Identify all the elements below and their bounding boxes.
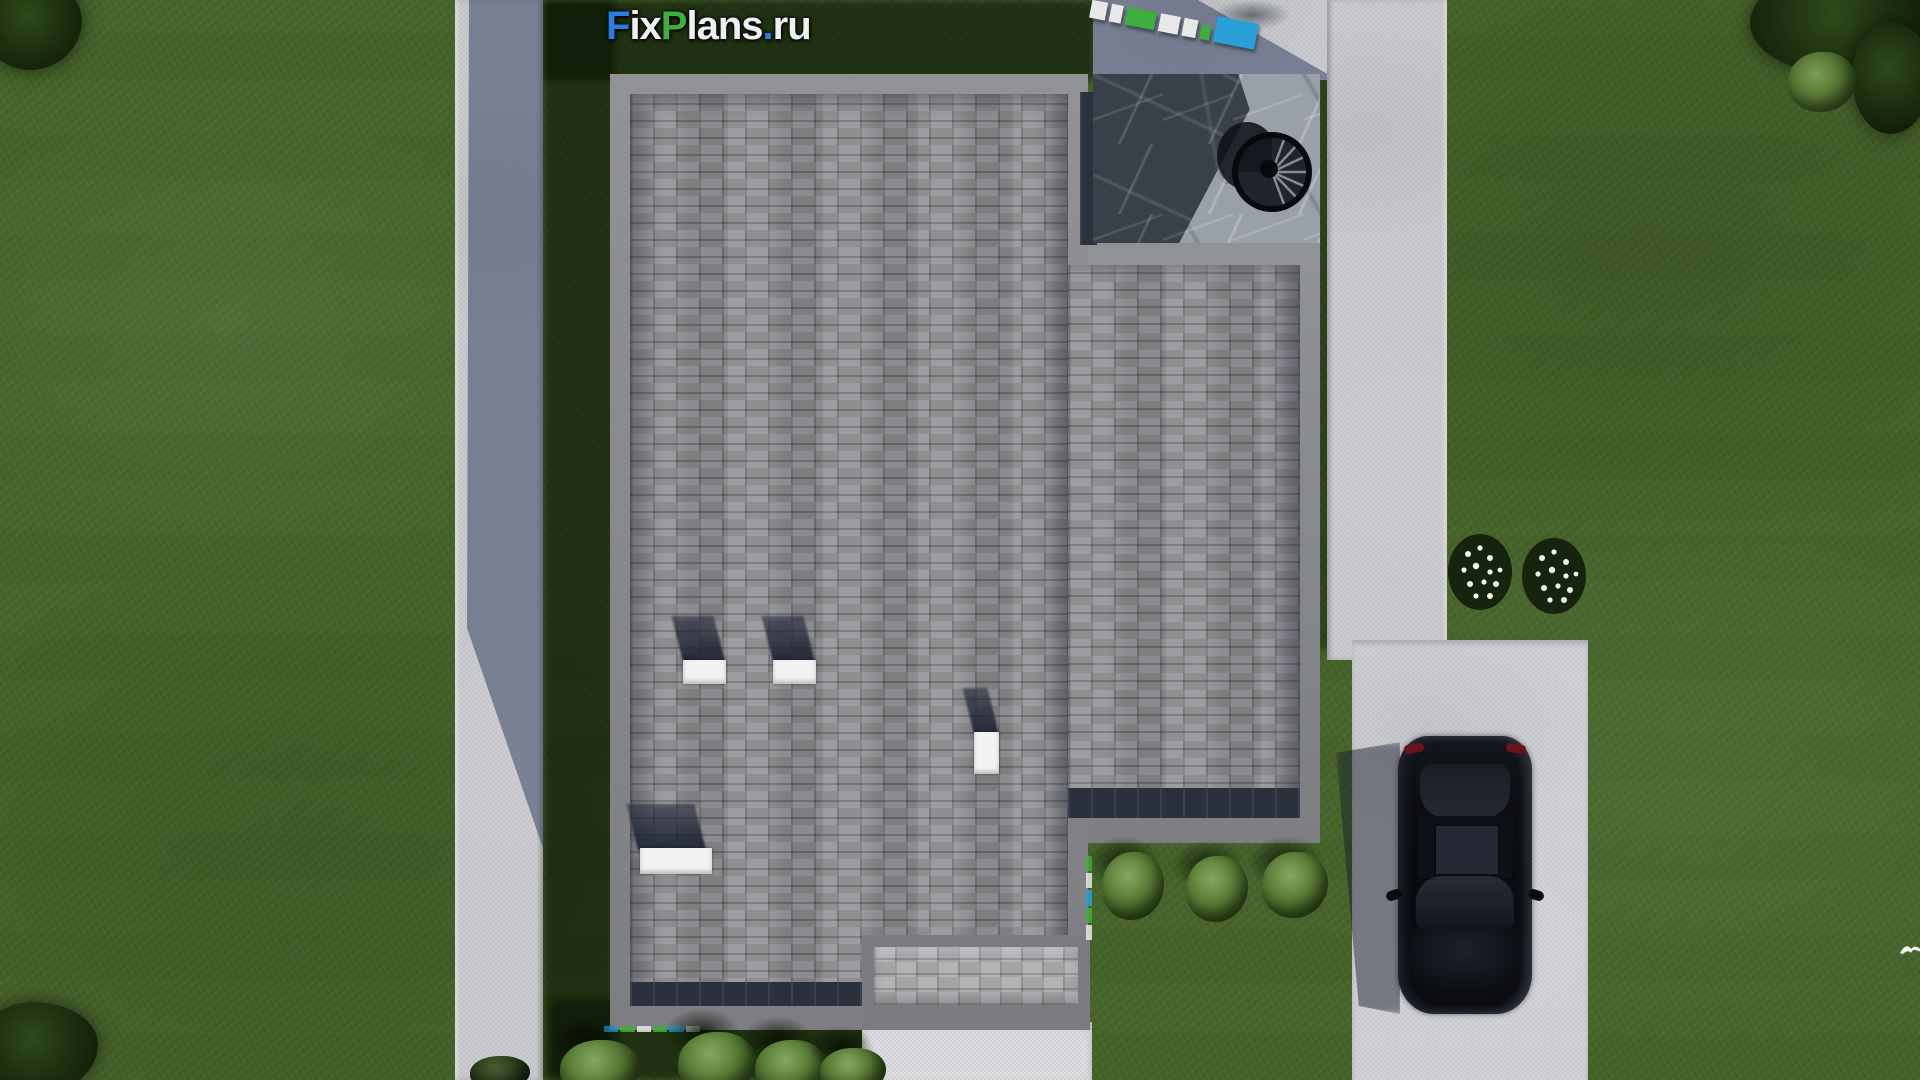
- chimney-cap: [773, 660, 816, 684]
- car-rear-window: [1420, 764, 1510, 818]
- stamp-block-green: [1199, 25, 1211, 41]
- logo-segment: ix: [629, 4, 660, 48]
- roof-shingles-right: [1068, 265, 1300, 818]
- car-windshield: [1416, 876, 1514, 930]
- logo-segment: F: [606, 4, 629, 48]
- right-sidewalk: [1327, 0, 1447, 660]
- stamp-block-white: [1181, 18, 1198, 38]
- roof-hatch: [640, 848, 712, 874]
- logo-segment: lans: [686, 4, 762, 48]
- white-bird: [1898, 940, 1920, 962]
- white-flower-bushes: [1446, 532, 1598, 624]
- car-taillight-left: [1403, 742, 1424, 754]
- logo-segment: ru: [773, 4, 811, 48]
- left-sidewalk: [455, 0, 543, 1080]
- parked-car: [1398, 736, 1532, 1014]
- logo-segment: P: [661, 4, 687, 48]
- stamp-block-white: [1109, 4, 1124, 24]
- house-shadow-left-strip: [543, 0, 615, 1080]
- bush: [820, 1048, 886, 1080]
- aerial-render-scene: FixPlans.ru: [0, 0, 1920, 1080]
- terrace-marble: [1093, 74, 1320, 243]
- roof-hatch-shadow: [627, 804, 706, 850]
- porch-roof-pavers: [874, 947, 1078, 1005]
- left-sidewalk-shadow: [455, 0, 543, 848]
- stamp-block-white: [1089, 0, 1108, 21]
- chimney-cap: [683, 660, 726, 684]
- fixplans-logo: FixPlans.ru: [606, 4, 811, 49]
- spiral-staircase: [1215, 112, 1315, 216]
- bush-shaded: [470, 1056, 530, 1080]
- roof-vent: [974, 732, 999, 774]
- logo-segment: .: [763, 4, 773, 48]
- roof-eave-shadow-right: [1068, 788, 1300, 818]
- stamp-block-white: [1158, 13, 1181, 34]
- tree-top-right-small: [1852, 22, 1920, 134]
- car-sunroof: [1434, 824, 1500, 876]
- porch-pad: [862, 1022, 1092, 1080]
- car-hood: [1410, 928, 1520, 1006]
- roof-eave-shadow-bottom: [630, 982, 866, 1006]
